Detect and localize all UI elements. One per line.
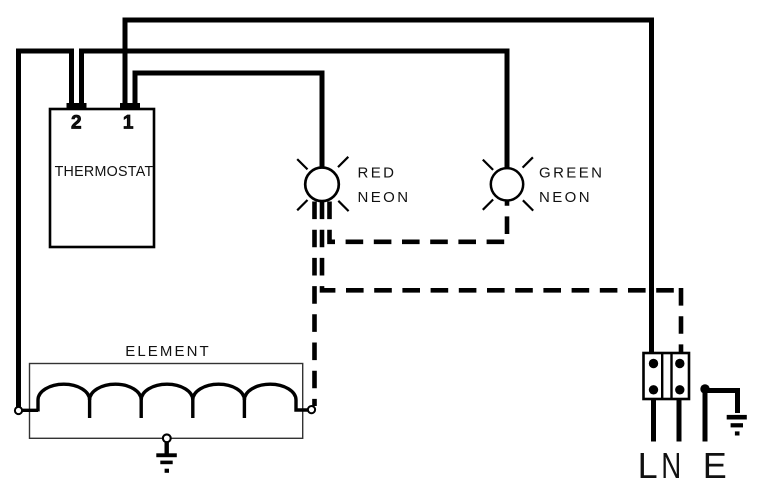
svg-text:GREEN: GREEN — [539, 165, 604, 182]
svg-text:E: E — [703, 445, 727, 486]
svg-text:THERMOSTAT: THERMOSTAT — [55, 164, 154, 180]
svg-text:N: N — [661, 445, 681, 486]
svg-text:NEON: NEON — [358, 189, 411, 206]
svg-text:NEON: NEON — [539, 189, 592, 206]
svg-text:RED: RED — [358, 165, 397, 182]
svg-text:ELEMENT: ELEMENT — [125, 343, 211, 360]
svg-text:2: 2 — [71, 113, 82, 134]
svg-text:L: L — [638, 445, 658, 486]
svg-text:1: 1 — [123, 113, 134, 134]
